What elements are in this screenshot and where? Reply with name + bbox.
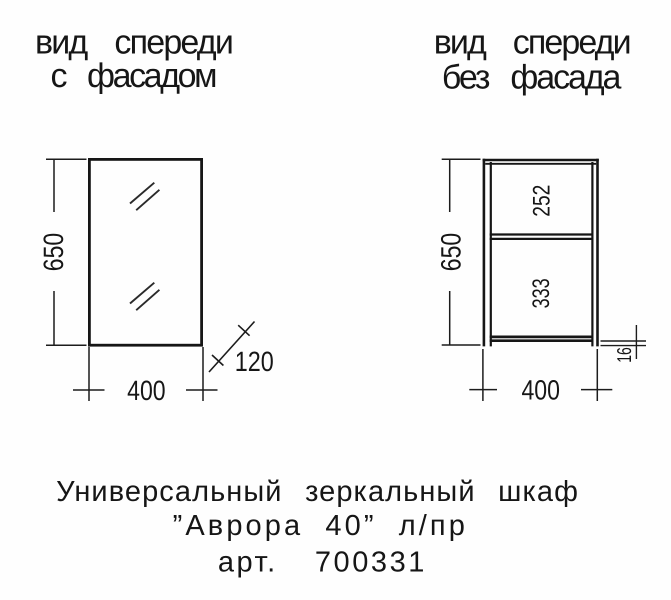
svg-text:вид спереди: вид спереди [35,24,232,62]
svg-text:400: 400 [521,374,560,405]
svg-text:вид спереди: вид спереди [434,24,630,62]
svg-text:Универсальный зеркальный шкаф: Универсальный зеркальный шкаф [56,476,579,508]
svg-text:16: 16 [614,347,636,363]
svg-text:с фасадом: с фасадом [50,57,216,95]
svg-text:650: 650 [38,233,69,272]
svg-text:252: 252 [529,185,556,217]
svg-text:120: 120 [235,346,274,377]
svg-text:без фасада: без фасада [442,59,622,97]
svg-text:400: 400 [127,375,166,406]
svg-text:”Аврора 40” л/пр: ”Аврора 40” л/пр [173,510,468,542]
svg-text:арт. 700331: арт. 700331 [218,547,427,579]
svg-text:650: 650 [435,233,466,272]
svg-text:333: 333 [528,278,555,308]
